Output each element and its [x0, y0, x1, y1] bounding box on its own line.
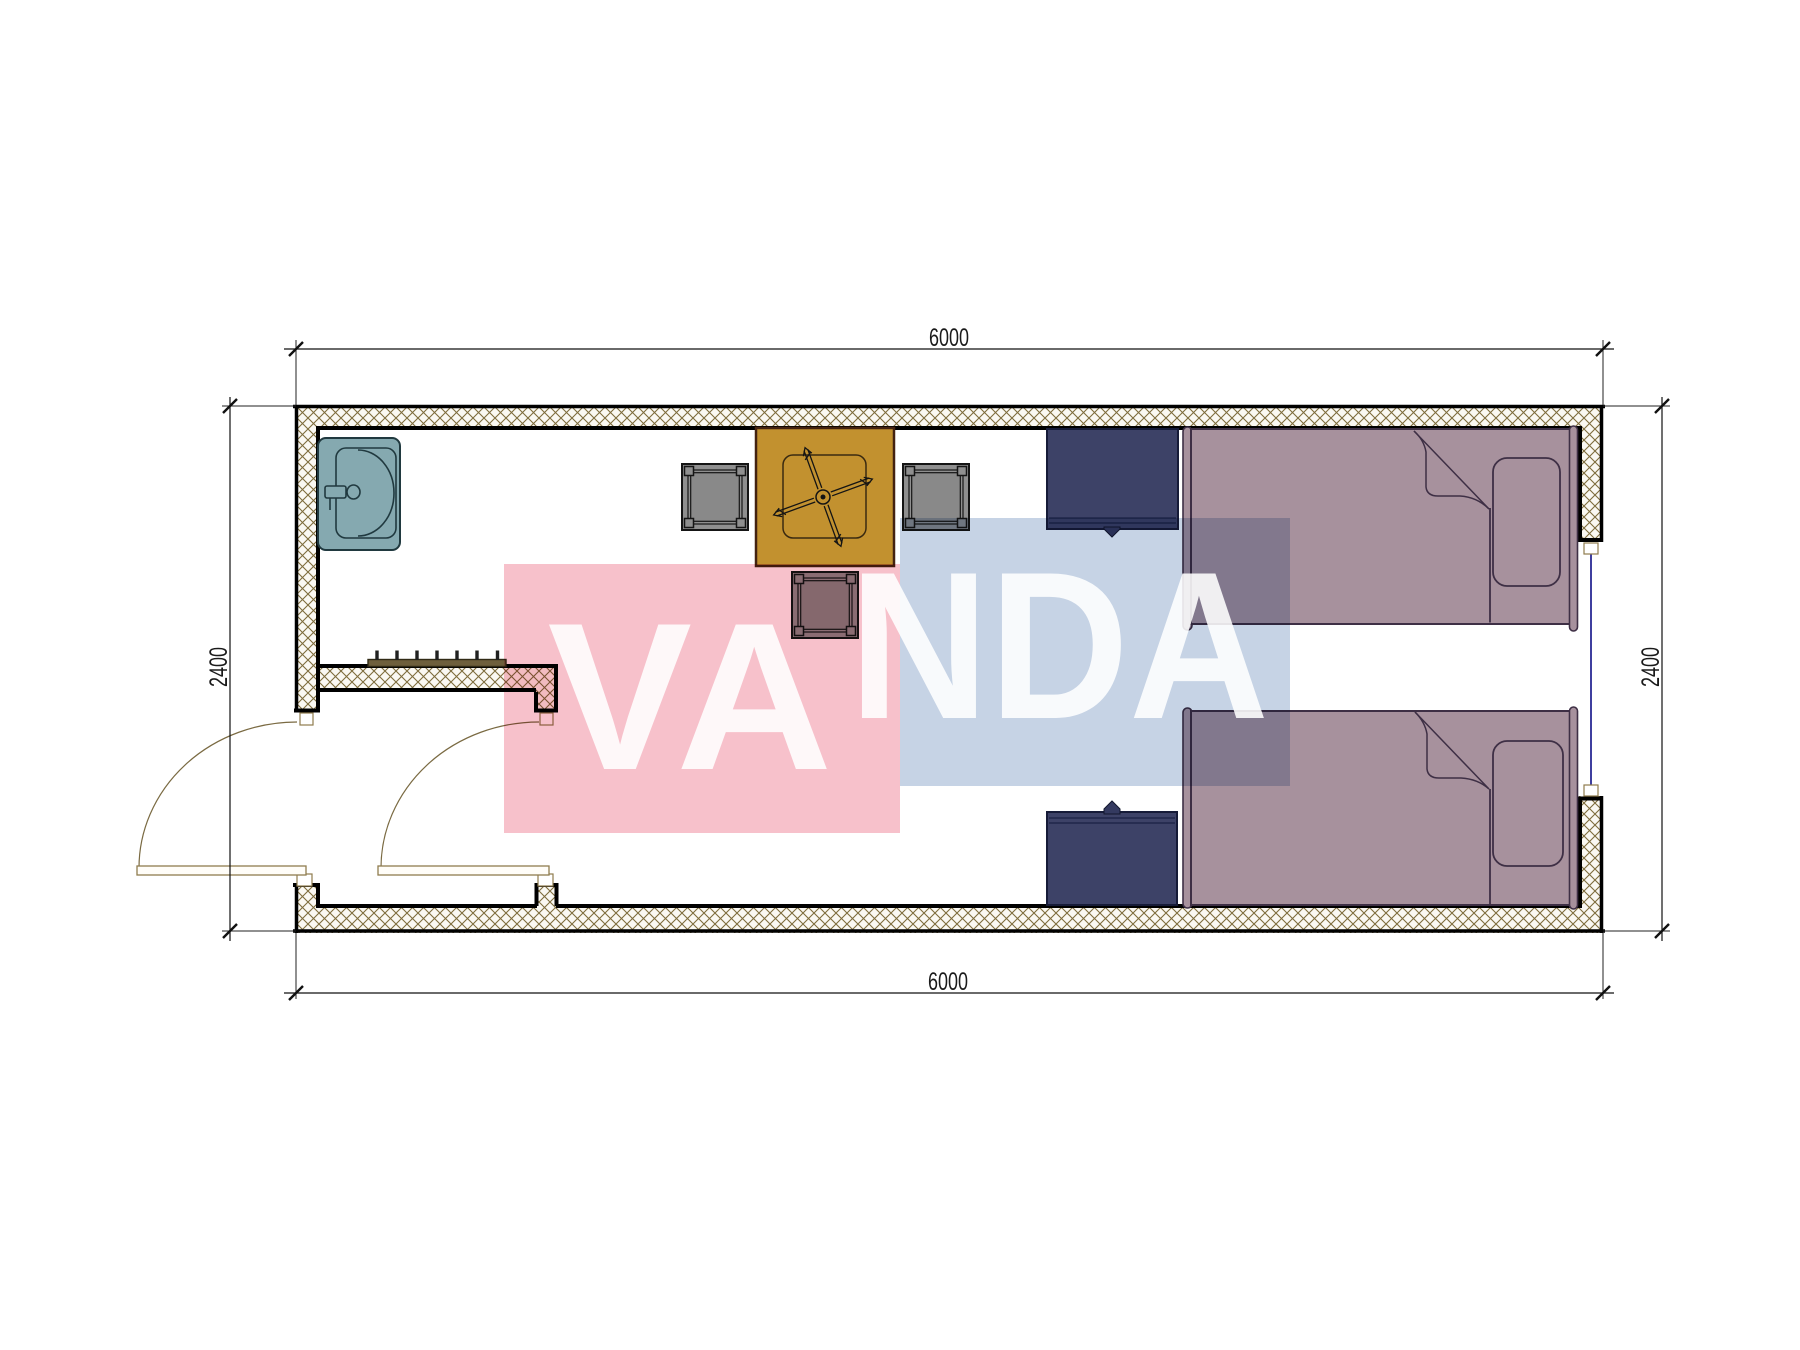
svg-text:2400: 2400 — [1637, 647, 1665, 687]
svg-text:2400: 2400 — [205, 647, 233, 687]
svg-text:6000: 6000 — [929, 324, 969, 352]
svg-text:6000: 6000 — [928, 968, 968, 996]
svg-text:VA: VA — [548, 579, 833, 814]
svg-text:NDA: NDA — [849, 528, 1269, 763]
